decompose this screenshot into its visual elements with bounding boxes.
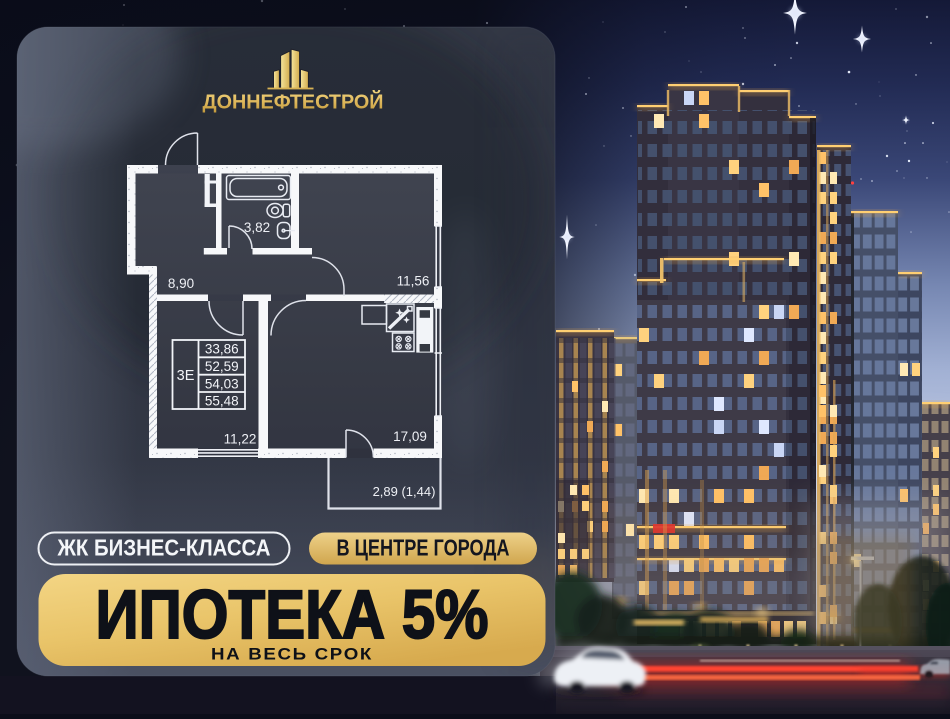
svg-text:ЖК БИЗНЕС-КЛАССА: ЖК БИЗНЕС-КЛАССА	[57, 535, 271, 561]
svg-text:2,89 (1,44): 2,89 (1,44)	[373, 484, 436, 499]
svg-text:11,22: 11,22	[224, 432, 257, 447]
svg-text:8,90: 8,90	[168, 276, 194, 291]
svg-text:11,56: 11,56	[397, 274, 430, 289]
svg-text:ДОННЕФТЕСТРОЙ: ДОННЕФТЕСТРОЙ	[203, 90, 384, 114]
svg-text:3,82: 3,82	[244, 220, 270, 235]
svg-text:ИПОТЕКА 5%: ИПОТЕКА 5%	[96, 576, 489, 653]
svg-text:НА ВЕСЬ СРОК: НА ВЕСЬ СРОК	[211, 645, 373, 664]
svg-text:В ЦЕНТРЕ ГОРОДА: В ЦЕНТРЕ ГОРОДА	[337, 535, 510, 561]
svg-text:17,09: 17,09	[393, 429, 427, 444]
